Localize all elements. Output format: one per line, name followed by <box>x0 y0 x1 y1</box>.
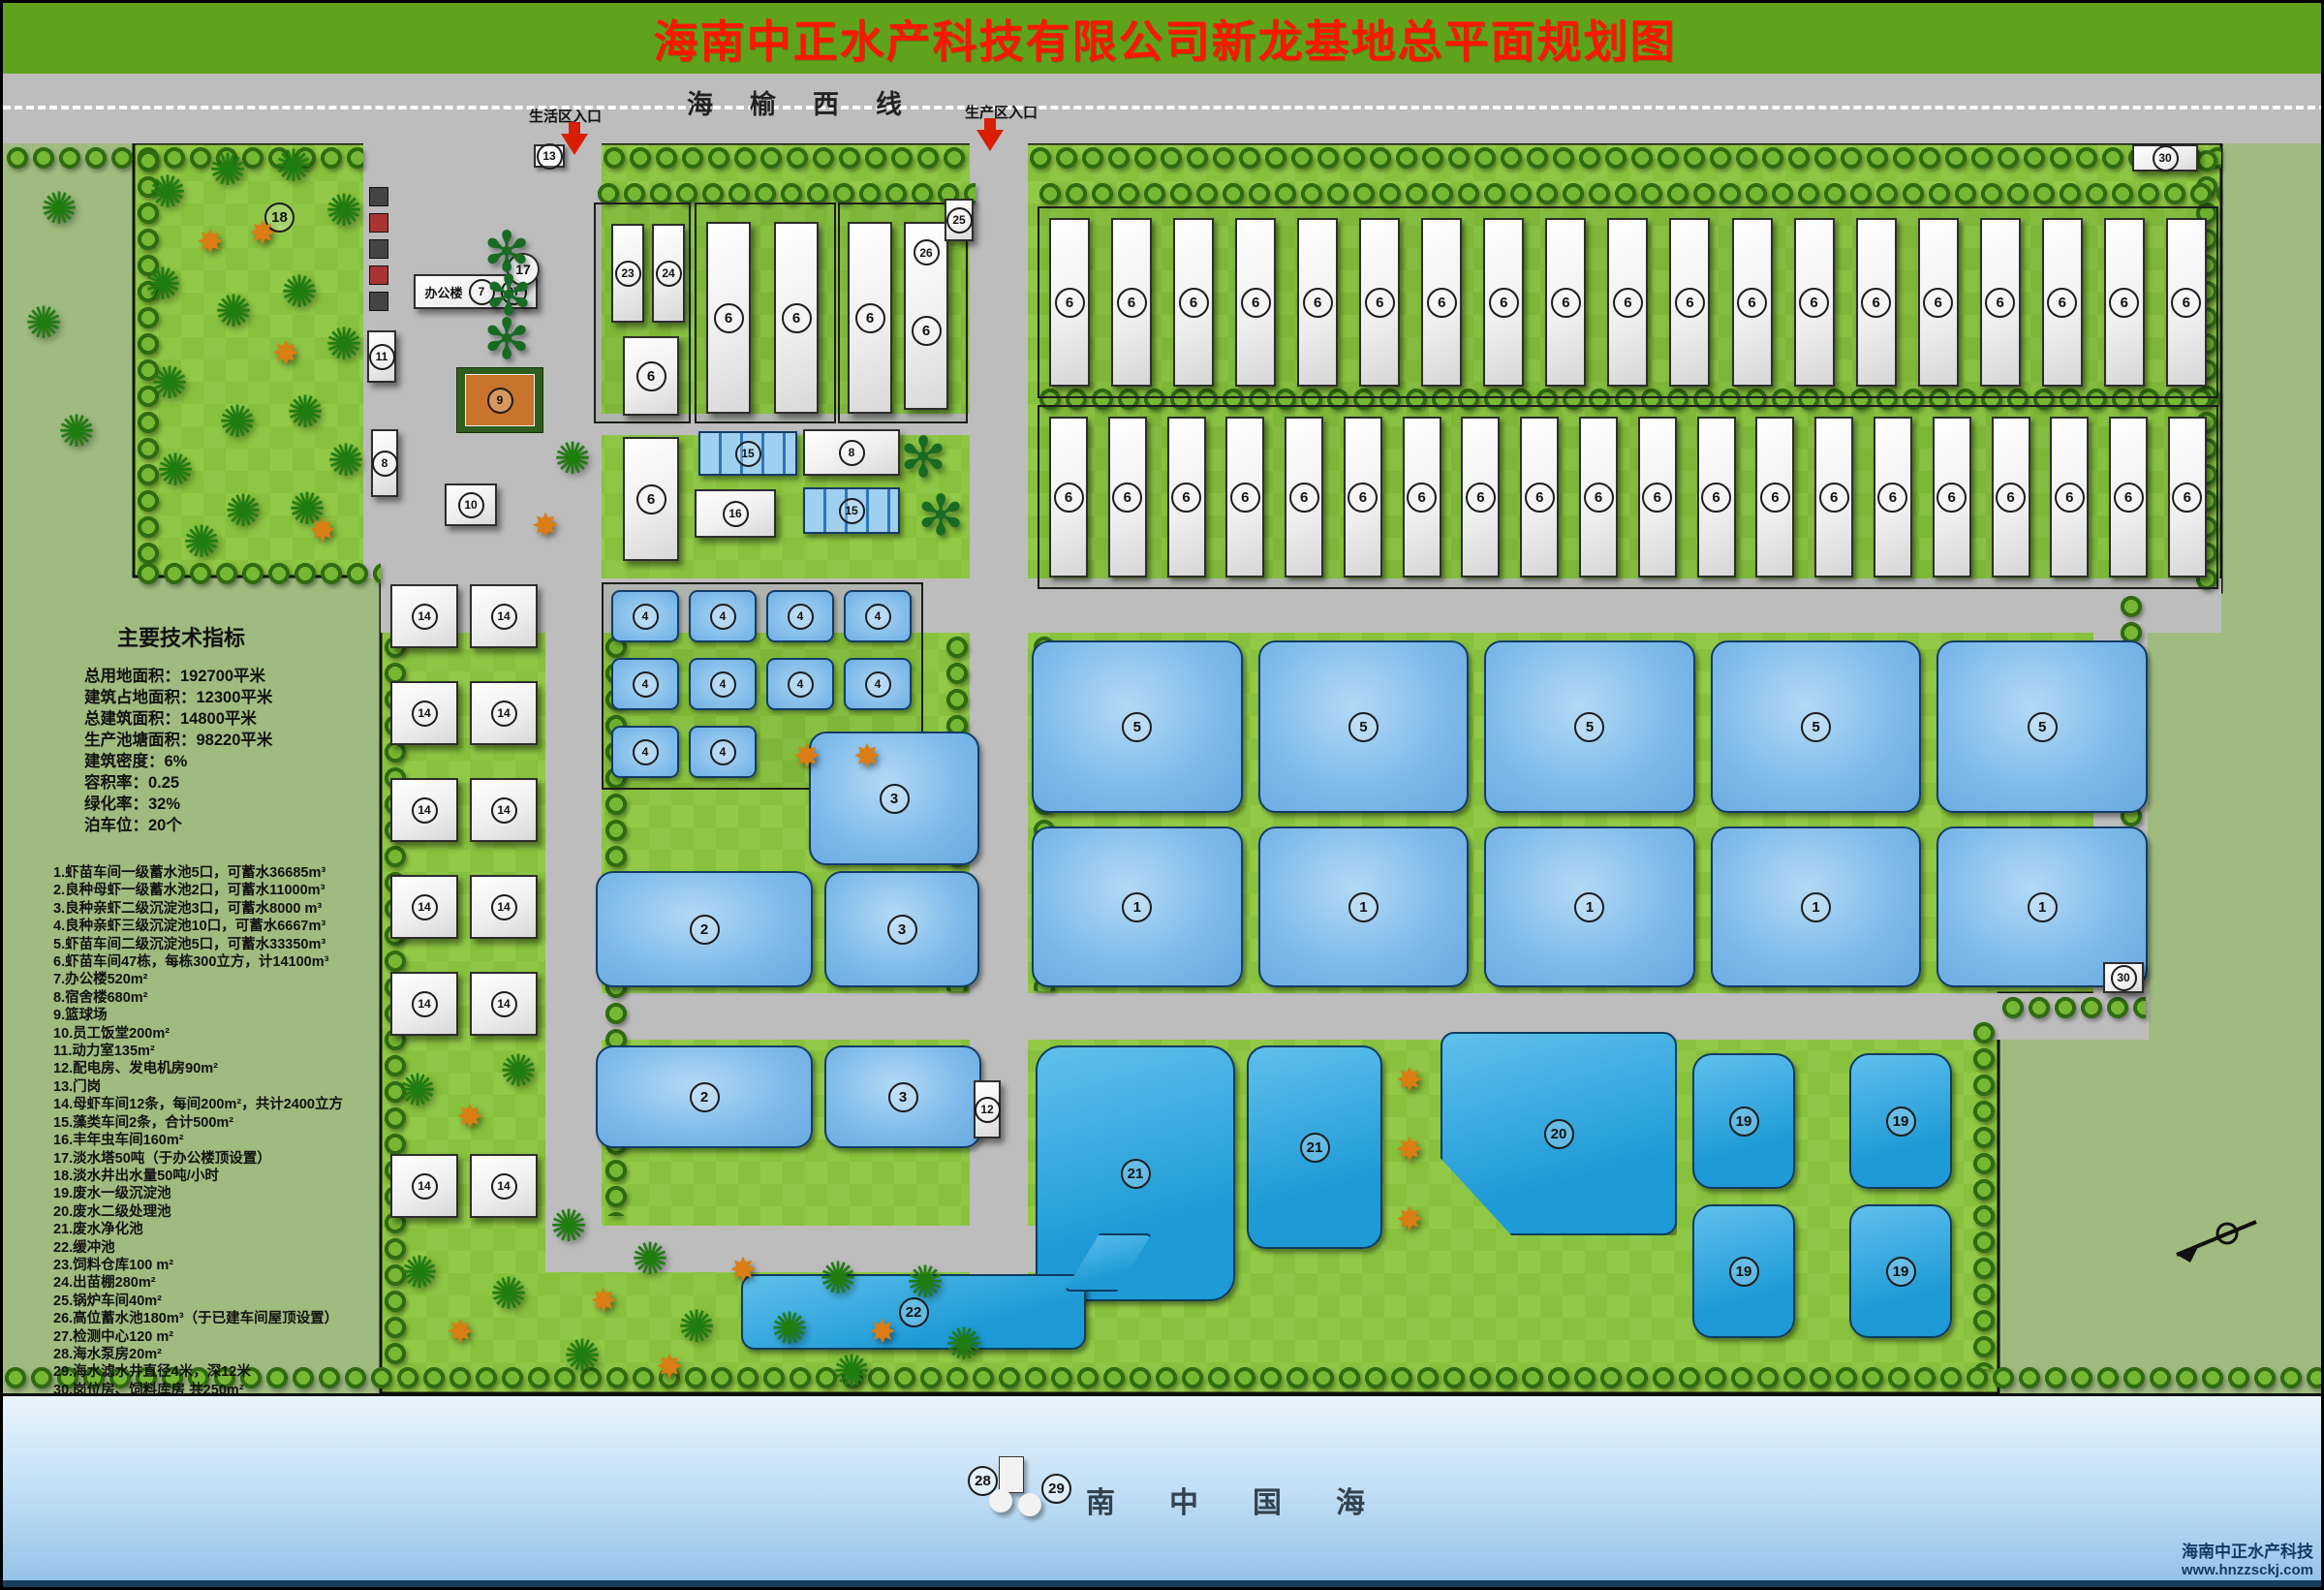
tree-icon: ✻ <box>900 430 947 486</box>
mark-guard-30: 30 <box>2111 965 2137 991</box>
guard-storage-building-a: 30 <box>2132 144 2198 171</box>
primary-storage-pond: 1 <box>1711 826 1922 987</box>
circled-mark: 19 <box>1886 1257 1916 1287</box>
parking-icon <box>369 239 388 259</box>
shrimp-workshop-building: 6 <box>1874 417 1912 577</box>
circled-mark: 6 <box>2171 288 2201 318</box>
shrimp-workshop-building: 6 <box>1794 218 1835 387</box>
circled-mark: 14 <box>491 701 517 727</box>
mark-guard-30: 30 <box>2153 145 2179 171</box>
tree-icon: ✻ <box>483 312 531 368</box>
bush-col-east-3 <box>1971 1020 1997 1369</box>
shrimp-workshop-building: 6 <box>1225 417 1264 577</box>
circled-mark: 4 <box>788 604 814 630</box>
circled-mark: 6 <box>1241 288 1271 318</box>
circled-mark: 6 <box>1985 288 2015 318</box>
mother-shrimp-workshop: 14 <box>470 1154 538 1218</box>
circled-mark: 4 <box>865 604 891 630</box>
circled-mark: 6 <box>1642 483 1672 513</box>
mother-shrimp-workshop: 14 <box>390 875 458 939</box>
circled-mark: 6 <box>1861 288 1891 318</box>
feed-store-building: 23 <box>611 224 644 323</box>
parking-icon <box>369 292 388 311</box>
orange-tree-icon: ✸ <box>1396 1203 1424 1236</box>
tertiary-settling-tank: 4 <box>611 658 679 710</box>
workshop-row-top: 6666666666666666666 <box>1038 206 2218 398</box>
circled-mark: 5 <box>1122 712 1152 742</box>
site-plan-canvas: 海南中正水产科技有限公司新龙基地总平面规划图 海 榆 西 线 生活区入口 生产区… <box>0 0 2324 1590</box>
secondary-sedimentation-pond: 5 <box>1484 640 1695 813</box>
tertiary-settling-tank: 4 <box>844 590 912 642</box>
circled-mark: 6 <box>1407 483 1437 513</box>
circled-mark: 6 <box>1675 288 1705 318</box>
circled-mark: 6 <box>1937 483 1967 513</box>
legend-item: 10.员工饭堂200m² <box>53 1025 343 1043</box>
shrimp-workshop-building: 6 <box>1933 417 1971 577</box>
primary-sedimentation-pond: 19 <box>1692 1053 1795 1189</box>
shrimp-workshop-building: 6 <box>706 222 751 414</box>
orange-tree-icon: ✸ <box>853 740 882 773</box>
shrimp-workshop-building: 6 <box>1669 218 1710 387</box>
tertiary-settling-tank: 4 <box>611 726 679 778</box>
circled-mark: 6 <box>2114 483 2144 513</box>
circled-mark: 14 <box>491 894 517 920</box>
shrimp-workshop-building: 6 <box>1814 417 1853 577</box>
mark-dorm-8: 8 <box>839 440 865 466</box>
tree-icon: ✺ <box>209 147 247 192</box>
mark-purify-21: 21 <box>1121 1159 1151 1189</box>
shrimp-workshop-building: 6 <box>2050 417 2089 577</box>
tree-icon: ✺ <box>41 186 78 231</box>
tree-icon: ✺ <box>945 1322 983 1366</box>
orange-tree-icon: ✸ <box>456 1101 484 1134</box>
circled-mark: 5 <box>2028 712 2058 742</box>
credit-block: 海南中正水产科技 www.hnzzsckj.com <box>2182 1542 2313 1580</box>
circled-mark: 6 <box>2172 483 2202 513</box>
orange-tree-icon: ✸ <box>869 1316 897 1349</box>
purification-pond-b: 21 <box>1247 1045 1382 1249</box>
primary-sedimentation-pond: 19 <box>1849 1204 1952 1338</box>
circled-mark: 6 <box>1996 483 2026 513</box>
mark-boiler-25: 25 <box>946 207 973 234</box>
circled-mark: 14 <box>491 991 517 1017</box>
circled-mark: 6 <box>1289 483 1319 513</box>
circled-mark: 6 <box>1489 288 1519 318</box>
legend-item: 20.废水二级处理池 <box>53 1203 343 1221</box>
gatehouse-building: 13 <box>534 144 565 168</box>
tech-indicator-line: 总用地面积：192700平米 <box>84 666 272 687</box>
legend-item: 2.良种母虾一级蓄水池2口，可蓄水11000m³ <box>53 882 343 899</box>
legend-list: 1.虾苗车间一级蓄水池5口，可蓄水36685m³2.良种母虾一级蓄水池2口，可蓄… <box>53 864 343 1399</box>
tree-icon: ✺ <box>678 1304 716 1349</box>
mark-power-11: 11 <box>369 344 395 370</box>
legend-item: 8.宿舍楼680m² <box>53 989 343 1007</box>
highway-centerline <box>3 106 2324 109</box>
pond-2a: 2 <box>596 871 813 987</box>
bottom-bar <box>3 1580 2324 1590</box>
circled-mark: 6 <box>1365 288 1395 318</box>
shrimp-workshop-building: 6 <box>1344 417 1382 577</box>
road-vertical-west <box>545 633 602 1272</box>
tree-icon: ✺ <box>325 188 363 233</box>
shrimp-workshop-building: 6 <box>1297 218 1338 387</box>
shrimp-workshop-building: 6 <box>1167 417 1206 577</box>
sea-filter-well <box>989 1489 1012 1512</box>
boiler-building: 25 <box>945 199 974 241</box>
shrimp-workshop-building: 6 <box>2109 417 2148 577</box>
circled-mark: 1 <box>1801 892 1831 922</box>
legend-item: 9.篮球场 <box>53 1007 343 1024</box>
mark-algae-15: 15 <box>735 441 761 467</box>
legend-item: 23.饲料仓库100 m² <box>53 1257 343 1274</box>
secondary-ponds-row: 55555 <box>1032 640 2148 813</box>
legend-item: 12.配电房、发电机房90m² <box>53 1060 343 1077</box>
legend-item: 5.虾苗车间二级沉淀池5口，可蓄水33350m³ <box>53 936 343 953</box>
legend-item: 24.出苗棚280m² <box>53 1274 343 1292</box>
legend-item: 13.门岗 <box>53 1078 343 1096</box>
circled-mark: 14 <box>412 991 438 1017</box>
nursery-shed-building: 24 <box>652 224 685 323</box>
tree-icon: ✺ <box>281 269 319 314</box>
canteen-building: 10 <box>445 483 497 526</box>
tree-icon: ✺ <box>58 409 96 453</box>
legend-item: 1.虾苗车间一级蓄水池5口，可蓄水36685m³ <box>53 864 343 882</box>
bush-row-forest-bottom <box>136 561 381 586</box>
highway: 海 榆 西 线 生活区入口 生产区入口 <box>3 74 2324 143</box>
circled-mark: 19 <box>1886 1107 1916 1137</box>
primary-storage-pond: 1 <box>1032 826 1243 987</box>
circled-mark: 4 <box>633 604 659 630</box>
dormitory-building-a: 8 <box>371 429 398 497</box>
mark-gate-13: 13 <box>537 143 563 170</box>
orange-tree-icon: ✸ <box>1396 1134 1424 1167</box>
shrimp-workshop-building: 6 <box>1607 218 1648 387</box>
circled-mark: 14 <box>412 604 438 630</box>
circled-mark: 6 <box>1466 483 1496 513</box>
shrimp-workshop-building: 6 <box>1697 417 1736 577</box>
tertiary-settling-tank: 4 <box>766 590 834 642</box>
tertiary-settling-tank: 4 <box>689 658 757 710</box>
circled-mark: 14 <box>491 604 517 630</box>
pond-3a: 3 <box>809 732 979 865</box>
circled-mark: 1 <box>1122 892 1152 922</box>
tree-icon: ✺ <box>500 1048 538 1093</box>
tree-icon: ✺ <box>144 262 182 306</box>
shrimp-workshop-building: 6 <box>1980 218 2021 387</box>
compass-north-arrow <box>2155 1202 2272 1276</box>
circled-mark: 5 <box>1348 712 1379 742</box>
tree-icon: ✺ <box>564 1333 602 1378</box>
legend-item: 26.高位蓄水池180m³（于已建车间屋顶设置） <box>53 1310 343 1327</box>
mark-nursery-24: 24 <box>656 261 682 287</box>
mother-shrimp-workshop: 14 <box>390 1154 458 1218</box>
tech-indicator-line: 绿化率：32% <box>84 794 272 815</box>
orange-tree-icon: ✸ <box>729 1254 758 1287</box>
power-room-building: 11 <box>367 330 396 383</box>
sea-area: 28 29 南 中 国 海 海南中正水产科技 www.hnzzsckj.com <box>3 1393 2324 1590</box>
primary-storage-pond: 1 <box>1484 826 1695 987</box>
sea-pump-house <box>999 1456 1024 1493</box>
circled-mark: 6 <box>1799 288 1829 318</box>
tree-icon: ✺ <box>833 1349 871 1393</box>
mark-pond-3: 3 <box>880 784 910 814</box>
mother-shrimp-workshop: 14 <box>470 972 538 1036</box>
mark-dist-12: 12 <box>975 1097 1001 1123</box>
highway-name: 海 榆 西 线 <box>687 83 902 121</box>
legend-item: 19.废水一级沉淀池 <box>53 1185 343 1202</box>
legend-item: 7.办公楼520m² <box>53 971 343 988</box>
primary-ponds-row: 11111 <box>1032 826 2148 987</box>
legend-item: 3.良种亲虾二级沉淀池3口，可蓄水8000 m³ <box>53 900 343 918</box>
secondary-sedimentation-pond: 5 <box>1032 640 1243 813</box>
primary-sedimentation-pond: 19 <box>1849 1053 1952 1189</box>
secondary-sedimentation-pond: 5 <box>1711 640 1922 813</box>
orange-tree-icon: ✸ <box>793 740 821 773</box>
tech-indicators-list: 总用地面积：192700平米建筑占地面积：12300平米总建筑面积：14800平… <box>84 666 272 836</box>
shrimp-workshop-building: 6 <box>1421 218 1462 387</box>
circled-mark: 14 <box>491 1173 517 1200</box>
tech-indicator-line: 建筑密度：6% <box>84 751 272 772</box>
tertiary-settling-tank: 4 <box>611 590 679 642</box>
mother-shrimp-workshop: 14 <box>470 875 538 939</box>
legend-item: 29.海水滤水井直径4米，深12米 <box>53 1363 343 1381</box>
parking-icon <box>369 265 388 285</box>
mark-pond-2: 2 <box>690 915 720 945</box>
circled-mark: 4 <box>788 671 814 698</box>
circled-mark: 6 <box>1701 483 1731 513</box>
mark-workshop-6: 6 <box>782 303 812 333</box>
tree-icon: ✺ <box>401 1250 439 1294</box>
tech-indicator-line: 泊车位：20个 <box>84 815 272 836</box>
mark-workshop-6: 6 <box>714 303 744 333</box>
circled-mark: 4 <box>710 739 736 765</box>
tertiary-settling-tank: 4 <box>844 658 912 710</box>
tree-icon: ✺ <box>550 1203 588 1248</box>
mark-purify-21: 21 <box>1300 1133 1330 1163</box>
mark-workshop-6: 6 <box>855 303 885 333</box>
parking-icon <box>369 213 388 233</box>
shrimp-workshop-building: 6 <box>2104 218 2145 387</box>
sea-filter-well <box>1018 1493 1041 1516</box>
legend-item: 4.良种亲虾三级沉淀池10口，可蓄水6667m³ <box>53 918 343 935</box>
parking-icon <box>369 187 388 206</box>
pond-3b: 3 <box>824 871 979 987</box>
circled-mark: 6 <box>1551 288 1581 318</box>
mark-sea-well-29: 29 <box>1041 1474 1071 1504</box>
circled-mark: 6 <box>1427 288 1457 318</box>
title-banner: 海南中正水产科技有限公司新龙基地总平面规划图 <box>3 3 2324 74</box>
tree-icon: ✺ <box>25 300 63 345</box>
shrimp-workshop-building: 6 <box>623 437 679 561</box>
mother-shrimp-workshop: 14 <box>470 778 538 842</box>
circled-mark: 6 <box>1819 483 1849 513</box>
tech-indicator-line: 建筑占地面积：12300平米 <box>84 687 272 708</box>
circled-mark: 4 <box>633 671 659 698</box>
mark-dorm-8: 8 <box>372 451 398 477</box>
shrimp-workshop-building: 6 <box>774 222 819 414</box>
circled-mark: 1 <box>2028 892 2058 922</box>
mother-shrimp-workshop: 14 <box>390 972 458 1036</box>
legend-item: 27.检测中心120 m² <box>53 1328 343 1346</box>
circled-mark: 6 <box>1171 483 1201 513</box>
circled-mark: 1 <box>1348 892 1379 922</box>
shrimp-workshop-building: 6 <box>1049 218 1090 387</box>
circled-mark: 6 <box>1230 483 1260 513</box>
mark-pond-3: 3 <box>888 1082 918 1112</box>
pond-3c: 3 <box>824 1045 981 1148</box>
tree-icon: ✺ <box>820 1256 857 1300</box>
shrimp-workshop-building: 6 <box>1638 417 1677 577</box>
mark-algae-15: 15 <box>839 498 865 524</box>
circled-mark: 6 <box>1525 483 1555 513</box>
mark-pond-2: 2 <box>690 1082 720 1112</box>
secondary-sedimentation-pond: 5 <box>1937 640 2148 813</box>
tree-icon: ✺ <box>149 170 187 214</box>
tree-icon: ✺ <box>399 1068 437 1112</box>
shrimp-workshop-building: 6 <box>848 222 892 414</box>
orange-tree-icon: ✸ <box>590 1285 618 1318</box>
tree-icon: ✺ <box>183 519 221 564</box>
brine-shrimp-workshop: 16 <box>695 489 776 538</box>
shrimp-workshop-building: 6 <box>1108 417 1147 577</box>
circled-mark: 19 <box>1729 1107 1759 1137</box>
circled-mark: 4 <box>865 671 891 698</box>
orange-tree-icon: ✸ <box>272 337 300 370</box>
shrimp-workshop-building: 6 <box>1173 218 1214 387</box>
mother-shrimp-workshop: 14 <box>390 778 458 842</box>
guard-storage-building-b: 30 <box>2103 962 2144 993</box>
legend-item: 21.废水净化池 <box>53 1221 343 1238</box>
mark-treat-20: 20 <box>1544 1119 1574 1149</box>
circled-mark: 5 <box>1574 712 1604 742</box>
legend-item: 25.锅炉车间40m² <box>53 1293 343 1310</box>
bush-row-east-step <box>2000 995 2146 1020</box>
shrimp-workshop-building: 6 <box>2166 218 2207 387</box>
circled-mark: 6 <box>2047 288 2077 318</box>
orange-tree-icon: ✸ <box>447 1316 475 1349</box>
tertiary-settling-tank: 4 <box>689 590 757 642</box>
tree-icon: ✺ <box>325 322 363 366</box>
legend-item: 22.缓冲池 <box>53 1239 343 1257</box>
page-title: 海南中正水产科技有限公司新龙基地总平面规划图 <box>654 7 1677 71</box>
mark-workshop-6: 6 <box>636 484 666 514</box>
shrimp-workshop-building: 6 <box>1461 417 1500 577</box>
bush-row-top-3 <box>1028 145 2221 171</box>
circled-mark: 14 <box>412 701 438 727</box>
legend-item: 15.藻类车间2条，合计500m² <box>53 1114 343 1132</box>
circled-mark: 6 <box>1613 288 1643 318</box>
orange-tree-icon: ✸ <box>656 1351 684 1384</box>
circled-mark: 6 <box>1737 288 1767 318</box>
algae-workshop-b: 15 <box>803 487 900 534</box>
circled-mark: 6 <box>1760 483 1790 513</box>
credit-company: 海南中正水产科技 <box>2182 1542 2313 1562</box>
shrimp-workshop-building: 6 <box>1285 417 1323 577</box>
bush-row-workshops-top <box>1038 181 2219 206</box>
legend-item: 18.淡水井出水量50吨/小时 <box>53 1168 343 1185</box>
shrimp-workshop-building: 6 <box>1755 417 1794 577</box>
tree-icon: ✺ <box>554 436 592 481</box>
tree-icon: ✺ <box>151 360 189 405</box>
mother-shrimp-workshop: 14 <box>390 681 458 745</box>
orange-tree-icon: ✸ <box>309 514 337 547</box>
credit-website: www.hnzzsckj.com <box>2182 1562 2313 1580</box>
mark-canteen-10: 10 <box>458 492 484 518</box>
tech-indicator-line: 容积率：0.25 <box>84 772 272 794</box>
circled-mark: 6 <box>2109 288 2139 318</box>
circled-mark: 14 <box>412 894 438 920</box>
orange-tree-icon: ✸ <box>197 226 225 259</box>
pond-2b: 2 <box>596 1045 813 1148</box>
shrimp-workshop-building: 6 <box>1049 417 1088 577</box>
mark-pond-3: 3 <box>887 915 917 945</box>
circled-mark: 6 <box>1303 288 1333 318</box>
circled-mark: 6 <box>1112 483 1142 513</box>
shrimp-workshop-building: 6 <box>2042 218 2083 387</box>
orange-tree-icon: ✸ <box>532 510 560 543</box>
mark-feed-23: 23 <box>615 261 641 287</box>
tree-icon: ✺ <box>632 1236 669 1281</box>
circled-mark: 6 <box>1055 288 1085 318</box>
mark-brine-16: 16 <box>723 501 749 527</box>
mother-shrimp-workshop: 14 <box>470 681 538 745</box>
basketball-court: 9 <box>456 367 543 433</box>
road-horizontal-south <box>545 993 2149 1040</box>
circled-mark: 6 <box>1877 483 1907 513</box>
shrimp-workshop-building: 6 <box>1520 417 1559 577</box>
tree-icon: ✺ <box>215 289 253 333</box>
circled-mark: 19 <box>1729 1257 1759 1287</box>
legend-item: 16.丰年虫车间160m² <box>53 1132 343 1149</box>
life-entrance-label: 生活区入口 <box>529 106 602 126</box>
shrimp-workshop-building: 6 <box>1856 218 1897 387</box>
tree-icon: ✺ <box>225 488 263 533</box>
shrimp-workshop-building: 6 <box>1403 417 1441 577</box>
circled-mark: 14 <box>412 797 438 824</box>
shrimp-workshop-building: 6 <box>1545 218 1586 387</box>
prod-entrance-label: 生产区入口 <box>965 102 1038 122</box>
workshop-row-bottom: 66666666666666666666 <box>1038 405 2218 589</box>
shrimp-workshop-building: 6 <box>1111 218 1152 387</box>
primary-sedimentation-pond: 19 <box>1692 1204 1795 1338</box>
tree-icon: ✺ <box>771 1306 809 1351</box>
bush-row-sea-edge <box>3 1365 2324 1390</box>
tree-icon: ✺ <box>287 390 325 434</box>
mark-high-tank-26: 26 <box>914 239 940 265</box>
shrimp-workshop-building: 6 <box>1732 218 1773 387</box>
tree-icon: ✻ <box>917 488 965 545</box>
sea-name: 南 中 国 海 <box>1086 1479 1365 1521</box>
legend-item: 6.虾苗车间47栋，每栋300立方，计14100m³ <box>53 953 343 971</box>
tree-icon: ✺ <box>907 1260 945 1304</box>
mark-court-9: 9 <box>487 388 513 414</box>
circled-mark: 1 <box>1574 892 1604 922</box>
circled-mark: 4 <box>710 604 736 630</box>
tech-indicator-line: 总建筑面积：14800平米 <box>84 708 272 730</box>
orange-tree-icon: ✸ <box>249 217 277 250</box>
mother-shrimp-workshop: 14 <box>390 584 458 648</box>
tree-icon: ✺ <box>490 1271 528 1316</box>
circled-mark: 4 <box>633 739 659 765</box>
legend-item: 28.海水泵房20m² <box>53 1346 343 1363</box>
dormitory-building-b: 8 <box>803 429 900 476</box>
shrimp-workshop-building: 6 <box>1918 218 1959 387</box>
circled-mark: 6 <box>1117 288 1147 318</box>
circled-mark: 6 <box>1054 483 1084 513</box>
road-buffer-pond <box>545 1226 1088 1272</box>
tree-icon: ✺ <box>275 143 313 188</box>
tertiary-settling-tank: 4 <box>766 658 834 710</box>
